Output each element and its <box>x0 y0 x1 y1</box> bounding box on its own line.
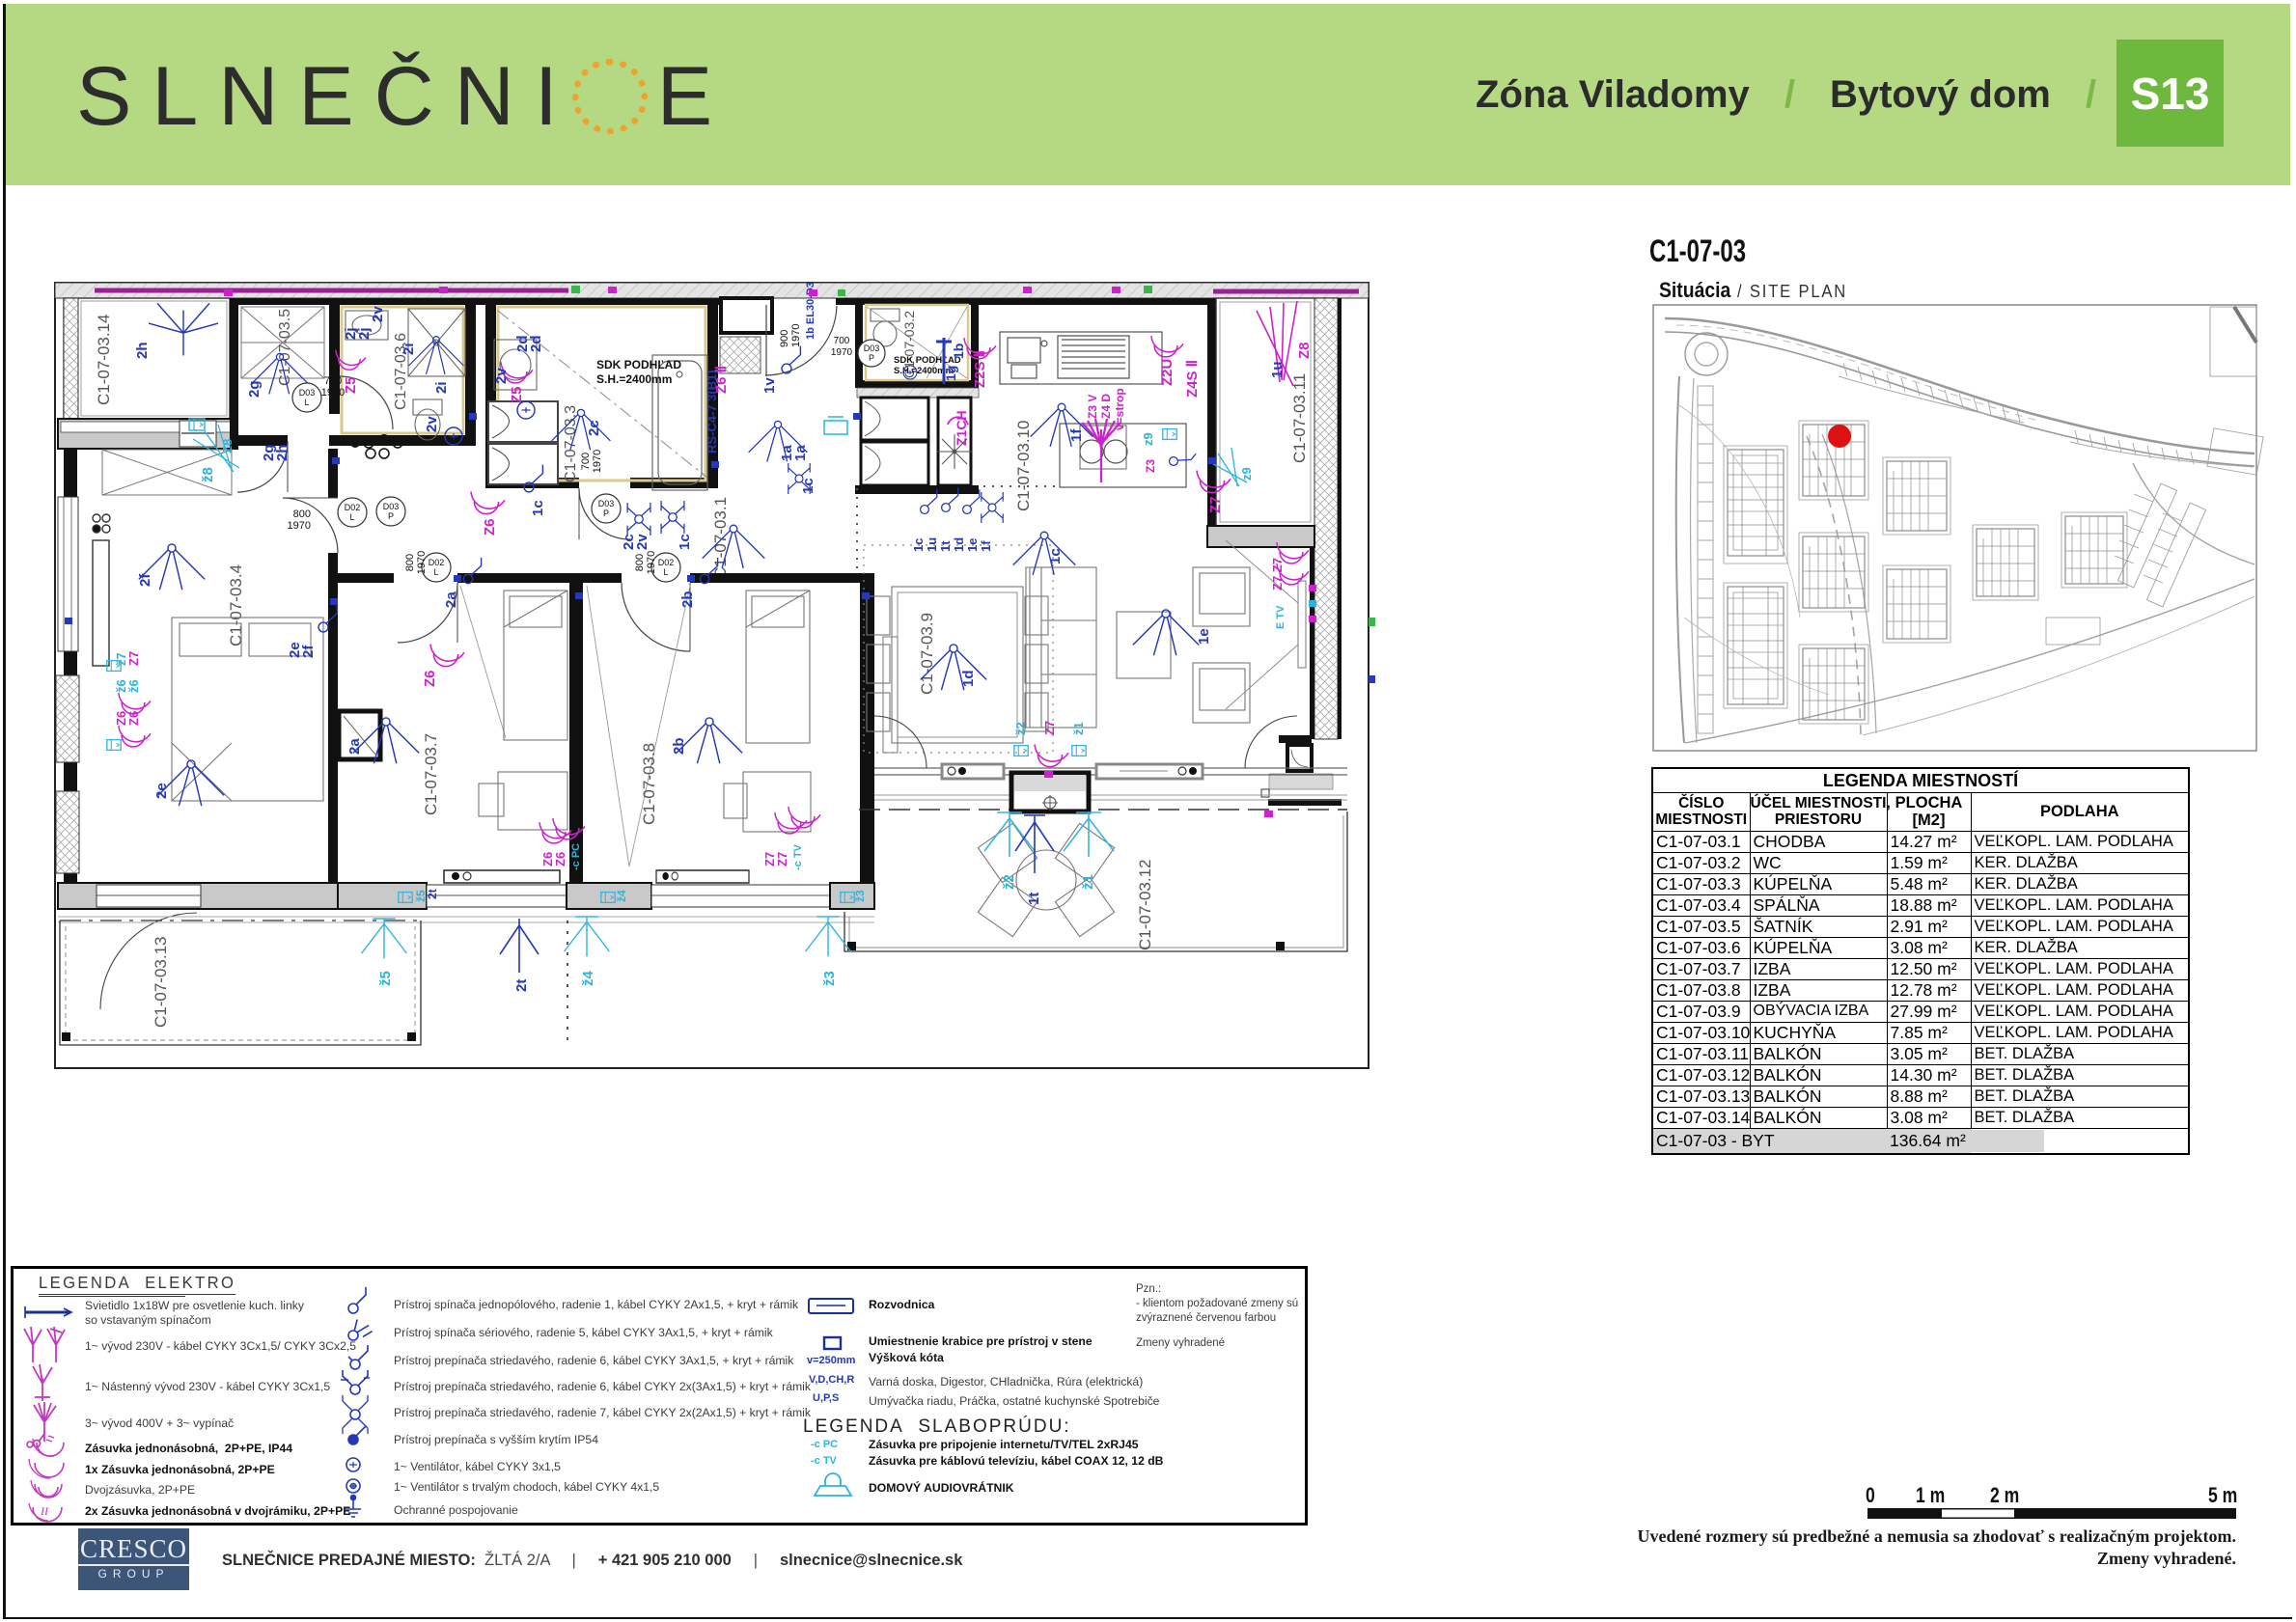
svg-text:ž1: ž1 <box>1071 722 1086 735</box>
svg-text:2f: 2f <box>137 573 153 587</box>
svg-text:v=strop: v=strop <box>1113 388 1126 430</box>
svg-text:D03: D03 <box>864 344 880 353</box>
svg-text:ž3: ž3 <box>821 971 838 986</box>
svg-text:Z3 V: Z3 V <box>1086 395 1099 419</box>
svg-text:1970: 1970 <box>416 551 428 574</box>
svg-text:Z6: Z6 <box>126 711 141 726</box>
svg-text:Z4 D: Z4 D <box>1099 394 1113 419</box>
svg-text:2e: 2e <box>153 783 170 799</box>
svg-text:C1-07-03.11: C1-07-03.11 <box>1290 373 1309 463</box>
svg-text:Z8: Z8 <box>220 439 235 454</box>
svg-text:ž6: ž6 <box>126 679 141 693</box>
svg-text:1t: 1t <box>1026 893 1042 905</box>
svg-text:S.H.=2400mm: S.H.=2400mm <box>596 372 672 386</box>
svg-text:1d: 1d <box>960 670 977 687</box>
svg-text:P: P <box>869 353 874 363</box>
svg-text:1e: 1e <box>1196 628 1212 645</box>
svg-text:Z5: Z5 <box>509 386 525 403</box>
svg-text:2j: 2j <box>356 327 373 340</box>
svg-text:P: P <box>603 509 609 518</box>
svg-text:2c: 2c <box>586 420 602 436</box>
svg-text:C1-07-03.7: C1-07-03.7 <box>422 733 440 815</box>
svg-text:Z7: Z7 <box>775 852 789 866</box>
svg-text:1a: 1a <box>792 445 809 461</box>
svg-text:z9: z9 <box>1141 432 1155 446</box>
svg-text:1f: 1f <box>979 540 993 552</box>
svg-text:P: P <box>388 511 394 521</box>
svg-text:1v: 1v <box>761 377 778 394</box>
svg-text:ž4: ž4 <box>580 971 596 987</box>
svg-text:2v: 2v <box>424 416 440 432</box>
svg-text:C1-07-03.8: C1-07-03.8 <box>640 743 658 825</box>
svg-text:1u: 1u <box>1269 361 1286 378</box>
svg-text:1970: 1970 <box>592 450 603 473</box>
svg-text:1u: 1u <box>925 537 939 552</box>
svg-text:Z7: Z7 <box>1042 721 1057 735</box>
svg-text:Z6: Z6 <box>482 518 498 536</box>
svg-text:C1-07-03.13: C1-07-03.13 <box>152 936 170 1028</box>
svg-text:1c: 1c <box>911 538 926 552</box>
svg-text:C1-07-03.12: C1-07-03.12 <box>1136 859 1154 950</box>
svg-text:700: 700 <box>834 336 850 346</box>
svg-text:C1-07-03.1: C1-07-03.1 <box>711 497 730 579</box>
svg-text:-c PC: -c PC <box>570 843 582 870</box>
svg-text:2b: 2b <box>671 737 687 755</box>
svg-text:2i: 2i <box>401 343 417 355</box>
svg-text:D03: D03 <box>383 502 400 511</box>
svg-text:ž2: ž2 <box>1001 874 1017 890</box>
svg-text:Z2S Ⅱ: Z2S Ⅱ <box>972 350 988 388</box>
svg-text:1970: 1970 <box>646 551 657 574</box>
svg-text:ž8: ž8 <box>200 467 216 482</box>
svg-text:D03: D03 <box>598 499 615 509</box>
svg-text:1b: 1b <box>951 344 966 359</box>
svg-text:ž5: ž5 <box>377 971 394 986</box>
svg-text:L: L <box>433 567 438 577</box>
svg-text:2t: 2t <box>426 889 439 899</box>
svg-text:L: L <box>663 567 668 577</box>
svg-text:E TV: E TV <box>1275 605 1286 629</box>
svg-text:2v: 2v <box>493 368 510 384</box>
svg-text:C1-07-03.3: C1-07-03.3 <box>563 405 579 482</box>
svg-text:1t: 1t <box>938 540 953 552</box>
svg-text:Z7 Z7: Z7 Z7 <box>1270 558 1285 591</box>
svg-text:-c TV: -c TV <box>792 843 804 870</box>
svg-text:D03: D03 <box>299 388 316 398</box>
svg-text:ž2: ž2 <box>1013 722 1028 735</box>
svg-text:800: 800 <box>634 554 646 571</box>
svg-text:800: 800 <box>293 509 311 520</box>
svg-text:Z6 Ⅱ: Z6 Ⅱ <box>713 366 730 394</box>
svg-text:2a: 2a <box>443 591 459 608</box>
svg-text:2i: 2i <box>433 381 450 394</box>
svg-text:2h: 2h <box>134 342 151 359</box>
svg-text:1970: 1970 <box>288 520 311 532</box>
svg-text:Z5: Z5 <box>343 376 359 394</box>
svg-text:1e: 1e <box>965 538 980 552</box>
svg-text:800: 800 <box>404 554 416 571</box>
svg-text:D02: D02 <box>429 558 445 567</box>
svg-text:D02: D02 <box>658 558 675 567</box>
svg-text:z9: z9 <box>1239 467 1254 481</box>
svg-text:ž3: ž3 <box>853 890 867 902</box>
svg-text:2b: 2b <box>679 591 696 608</box>
svg-text:700: 700 <box>324 375 342 387</box>
svg-text:C1-07-03.5: C1-07-03.5 <box>277 309 293 386</box>
svg-text:Z7: Z7 <box>1207 496 1224 513</box>
svg-text:2d: 2d <box>528 335 544 352</box>
svg-text:1d: 1d <box>952 537 966 552</box>
svg-text:Z4S Ⅱ: Z4S Ⅱ <box>1184 360 1201 398</box>
svg-text:Z1CH: Z1CH <box>954 410 969 446</box>
svg-text:1c: 1c <box>530 500 546 516</box>
svg-text:1970: 1970 <box>831 347 853 358</box>
svg-text:1f: 1f <box>1068 428 1085 442</box>
svg-text:ž4: ž4 <box>615 890 628 902</box>
svg-text:2v: 2v <box>370 306 386 322</box>
svg-text:C1-07-03.10: C1-07-03.10 <box>1014 420 1033 511</box>
svg-text:Z2U: Z2U <box>1159 359 1176 386</box>
svg-text:1970: 1970 <box>790 324 802 347</box>
svg-text:D02: D02 <box>345 503 361 512</box>
svg-text:C1-07-03.4: C1-07-03.4 <box>227 564 245 646</box>
svg-text:2t: 2t <box>513 979 530 992</box>
svg-text:700: 700 <box>580 453 592 470</box>
svg-text:2v: 2v <box>634 534 650 550</box>
svg-text:Z7: Z7 <box>126 651 141 666</box>
svg-text:2h: 2h <box>274 444 290 461</box>
svg-text:1g: 1g <box>943 366 958 381</box>
svg-text:Z6: Z6 <box>422 670 438 687</box>
svg-text:L: L <box>349 512 354 522</box>
svg-text:Z3: Z3 <box>1144 459 1157 473</box>
svg-text:2f: 2f <box>300 645 317 658</box>
svg-text:Z6: Z6 <box>553 852 567 866</box>
svg-text:900: 900 <box>779 330 790 347</box>
svg-text:1c: 1c <box>677 534 693 550</box>
svg-text:L: L <box>304 398 309 407</box>
svg-text:Z8: Z8 <box>1296 342 1313 359</box>
svg-text:2g: 2g <box>246 380 263 398</box>
svg-text:SDK PODHĽAD: SDK PODHĽAD <box>596 358 681 371</box>
svg-text:ž1: ž1 <box>1080 874 1096 890</box>
svg-text:2a: 2a <box>346 738 363 755</box>
svg-text:C1-07-03.9: C1-07-03.9 <box>918 613 936 695</box>
svg-text:1970: 1970 <box>321 387 345 399</box>
svg-text:1c: 1c <box>1047 548 1064 564</box>
svg-text:C1-07-03.14: C1-07-03.14 <box>95 314 113 405</box>
